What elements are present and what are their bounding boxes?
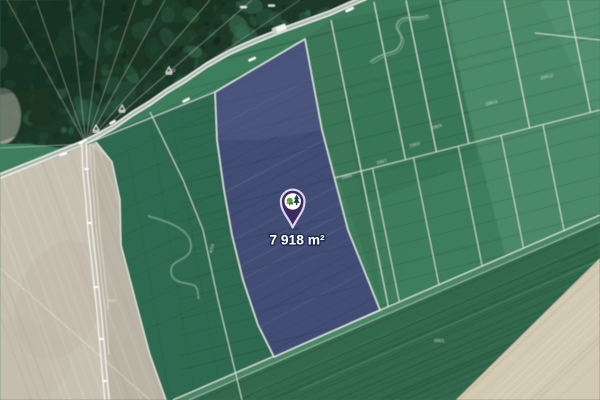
- svg-text:2007: 2007: [107, 298, 117, 303]
- svg-text:496/1: 496/1: [434, 338, 445, 343]
- svg-text:7 918 m²: 7 918 m²: [269, 233, 325, 248]
